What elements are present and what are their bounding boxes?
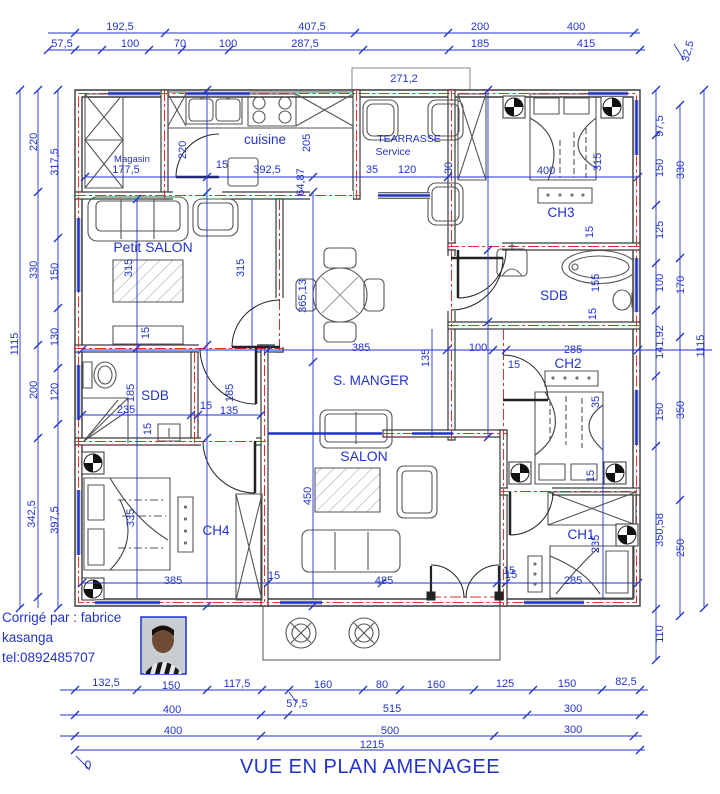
dimension-label: 15 [268,570,280,582]
dimension-label: 400 [537,165,555,177]
door-petit-salon [232,300,280,347]
dimension-label: 300 [564,703,582,715]
dimension-label: 315 [235,259,247,277]
window-symbol [186,90,250,97]
dimension-label: 135 [220,405,238,417]
dimension-label: 330 [28,261,40,279]
dimension-label: 125 [496,678,514,690]
dimension-label: 132,5 [92,677,120,689]
window-symbol [524,599,584,606]
dimension-label: 315 [123,259,135,277]
dimension-label: 205 [301,134,313,152]
room-label-ch3: CH3 [547,205,574,220]
floor-plan-page: { "title": "VUE EN PLAN AMENAGEE", "cred… [0,0,720,794]
window-symbol [75,365,82,420]
dimension-label: 192,5 [106,21,134,33]
dimension-label: 135 [420,349,432,367]
dimension-label: 117,5 [224,678,251,690]
window-symbol [633,100,640,155]
dimension-label: 220 [177,141,189,159]
dimension-label: 35 [366,164,378,176]
dimension-label: 170 [675,276,687,294]
dimension-label: 400 [164,725,182,737]
dimension-label: 80 [376,679,388,691]
dimension-label: 120 [49,383,61,401]
dimension-label: 100 [121,38,139,50]
dimension-label: 350,58 [654,513,666,547]
dimension-label: 100 [654,274,666,292]
dimension-label: 82,5 [615,676,636,688]
window-symbol [108,90,160,97]
door-ch4 [203,441,255,493]
door-ch1 [510,492,553,535]
dimension-label: 450 [302,487,314,505]
dimension-label: 15 [140,327,152,339]
dimension-label: 15 [142,423,154,435]
dimension-label: 64,87 [295,168,307,196]
dimension-label: 57,5 [51,38,72,50]
author-photo [141,617,186,674]
dimension-label: 35 [590,396,602,408]
dimension-label: 57,5 [286,698,307,710]
dining-set [296,248,384,342]
dimension-label: 15 [508,359,520,371]
dimension-label: 185 [471,38,489,50]
room-label-s-manger: S. MANGER [333,373,409,388]
dimension-label: 150 [558,678,576,690]
dimension-label: 185 [224,384,236,402]
dimension-label: 397,5 [49,506,61,534]
dimension-label: 110 [654,625,666,643]
credit-line2: kasanga [2,630,53,645]
dimension-label: 32,5 [680,39,697,63]
ch3-furniture [458,94,596,203]
dimension-label: 350 [675,401,687,419]
dimension-label: 120 [398,164,416,176]
dimension-label: 250 [675,539,687,557]
window-symbol [588,90,628,97]
dimension-label: 150 [49,263,61,281]
window-symbol [633,390,640,445]
ch2-furniture [535,371,603,484]
dimension-label: 150 [654,403,666,421]
window-symbol [95,599,160,606]
dimension-label: 15 [505,569,517,581]
floor-plan-drawing: 192,5407,520040057,510070100287,51854152… [0,0,720,794]
dimension-label: 15 [587,308,599,320]
dimension-label: 500 [381,725,399,737]
dimension-label: 407,5 [298,21,326,33]
dimension-label: 220 [28,133,40,151]
dimension-label: 342,5 [26,500,38,528]
dimension-label: 155 [590,274,602,292]
dimension-label: 415 [577,38,595,50]
sdb-right-fixtures [497,243,639,310]
drawing-title: VUE EN PLAN AMENAGEE [60,756,680,779]
dimension-label: 100 [469,342,487,354]
credit-line3: tel:0892485707 [2,650,95,665]
dimension-label: 15 [216,159,228,171]
room-label-ch2: CH2 [554,356,581,371]
dimension-label: 15 [200,400,212,412]
dimension-label: 235 [590,535,602,553]
porch-plants [286,618,379,648]
dimension-label: 271,2 [390,73,418,85]
dimension-label: 1215 [360,739,384,751]
dimension-label: 335 [125,509,137,527]
dimension-label: 400 [567,21,585,33]
dimension-label: 70 [174,38,186,50]
dimension-label: 200 [28,381,40,399]
dimension-label: 150 [162,680,180,692]
dimension-label: 515 [383,703,401,715]
window-symbol [633,258,640,312]
dimension-label: 300 [564,724,582,736]
dimension-label: 97,5 [654,115,666,136]
dimension-label: 330 [675,161,687,179]
dimension-label: 317,5 [49,148,61,176]
dimension-label: 235 [117,404,135,416]
room-label-sdb-left: SDB [141,388,169,403]
window-symbol [75,218,82,292]
dimension-label: 287,5 [291,38,319,50]
dimension-label: 125 [654,221,666,239]
room-label-cuisine: cuisine [244,132,286,147]
room-label-terrasse: TEARRASSE [377,133,441,145]
dimension-label: 150 [654,159,666,177]
dimension-label: 285 [564,575,582,587]
dimension-label: 15 [585,470,597,482]
room-label-terrasse-2: Service [375,146,410,158]
dimension-label: 400 [163,704,181,716]
dimension-label: 1115 [695,335,707,358]
dimension-label: 365,13 [297,279,309,313]
dimension-label: 141,92 [654,325,666,359]
room-label-petit-salon: Petit SALON [113,239,192,255]
dimension-label: 200 [471,21,489,33]
dimension-label: 485 [375,575,393,587]
dimension-label: 177,5 [112,164,140,176]
dimension-label: 30 [443,162,455,174]
credit-line1: Corrigé par : fabrice [2,610,121,625]
dimension-label: 15 [584,226,596,238]
dimension-label: 1115 [9,333,21,356]
window-symbol [75,490,82,555]
dimension-label: 315 [592,153,604,171]
dimension-label: 160 [427,679,445,691]
dimension-label: 100 [219,38,237,50]
dimension-label: 385 [164,575,182,587]
credit-block: Corrigé par : fabrice kasanga tel:089248… [2,608,121,668]
dimension-label: 130 [49,328,61,346]
dimension-label: 392,5 [253,164,281,176]
room-label-sdb-right: SDB [540,288,568,303]
dimension-label: 385 [352,342,370,354]
window-symbol [378,192,430,199]
dimension-label: 285 [564,344,582,356]
room-label-ch4: CH4 [202,523,229,538]
room-label-salon: SALON [340,448,387,464]
dimension-label: 160 [314,679,332,691]
petit-salon-furniture [88,197,238,344]
dimension-label: 185 [125,384,137,402]
